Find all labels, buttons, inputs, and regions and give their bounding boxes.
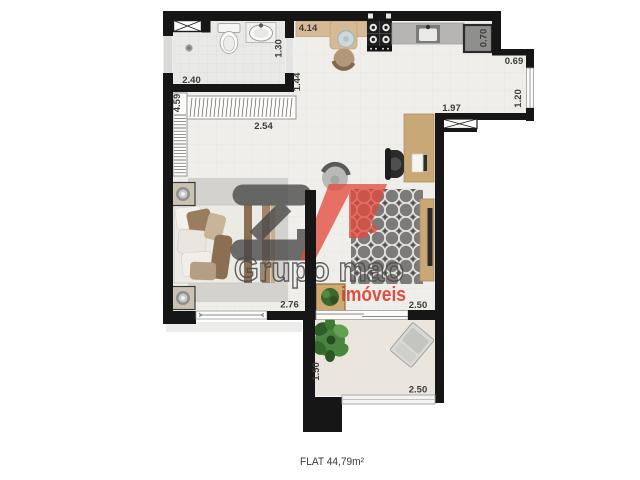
svg-text:1.30: 1.30	[274, 39, 285, 58]
svg-text:imóveis: imóveis	[341, 284, 406, 306]
svg-text:2.50: 2.50	[409, 385, 428, 396]
svg-text:2.40: 2.40	[182, 75, 201, 86]
svg-text:4.14: 4.14	[299, 23, 318, 34]
svg-text:2.76: 2.76	[280, 300, 299, 311]
svg-text:FLAT 44,79m²: FLAT 44,79m²	[300, 456, 364, 468]
svg-text:0.70: 0.70	[479, 29, 490, 48]
svg-text:2.54: 2.54	[254, 121, 273, 132]
svg-text:4.59: 4.59	[172, 94, 183, 113]
svg-text:1.20: 1.20	[513, 89, 524, 108]
svg-text:1.44: 1.44	[292, 72, 303, 91]
svg-text:1.97: 1.97	[442, 103, 461, 114]
svg-text:2.50: 2.50	[409, 300, 428, 311]
svg-text:0.69: 0.69	[505, 56, 524, 67]
svg-text:1.50: 1.50	[311, 362, 322, 381]
